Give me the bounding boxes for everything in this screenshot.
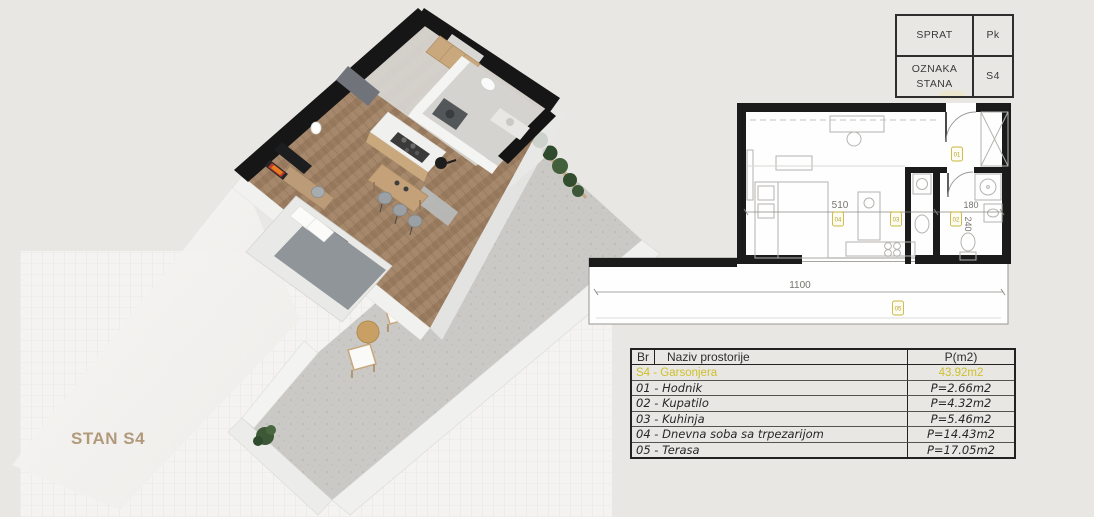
room-name: 05 - Terasa bbox=[632, 443, 907, 457]
dim-terrace-width: 1100 bbox=[789, 280, 811, 291]
dim-bathroom-width: 180 bbox=[963, 200, 978, 210]
room-name: 03 - Kuhinja bbox=[632, 412, 907, 426]
info-label-sprat: SPRAT bbox=[897, 16, 974, 57]
area-table-header: Br Naziv prostorije P(m2) bbox=[632, 350, 1014, 365]
room-area: P=2.66m2 bbox=[907, 381, 1014, 395]
dim-living-width: 510 bbox=[832, 200, 849, 211]
room-name: 02 - Kupatilo bbox=[632, 396, 907, 410]
header-area: P(m2) bbox=[907, 350, 1014, 364]
info-value-oznaka-stana: S4 bbox=[974, 57, 1012, 96]
unit-info-box: SPRAT Pk OZNAKA STANA S4 bbox=[895, 14, 1014, 98]
view-2d: 510 180 240 1100 01 02 bbox=[589, 91, 1011, 325]
marker-kuhinja: 03 bbox=[891, 212, 902, 226]
table-row: 02 - Kupatilo P=4.32m2 bbox=[632, 396, 1014, 411]
svg-text:05: 05 bbox=[895, 307, 902, 313]
svg-text:03: 03 bbox=[893, 218, 900, 224]
marker-dnevna-soba: 04 bbox=[833, 212, 844, 226]
info-value-sprat: Pk bbox=[974, 16, 1012, 57]
room-area: P=14.43m2 bbox=[907, 427, 1014, 441]
area-table: Br Naziv prostorije P(m2) S4 - Garsonjer… bbox=[630, 348, 1016, 459]
wall-clock-3d bbox=[311, 122, 321, 134]
room-area: P=5.46m2 bbox=[907, 412, 1014, 426]
pan-3d bbox=[435, 157, 447, 169]
table-row: 03 - Kuhinja P=5.46m2 bbox=[632, 412, 1014, 427]
floor-plan-sheet: 510 180 240 1100 01 02 bbox=[0, 0, 1094, 517]
dim-bathroom-depth: 240 bbox=[963, 216, 973, 231]
room-name: 01 - Hodnik bbox=[632, 381, 907, 395]
header-naziv: Naziv prostorije bbox=[655, 350, 907, 364]
marker-terasa: 05 bbox=[893, 301, 904, 315]
table-row: 05 - Terasa P=17.05m2 bbox=[632, 443, 1014, 457]
unit-label: STAN S4 bbox=[71, 429, 145, 449]
summary-area: 43.92m2 bbox=[907, 365, 1014, 379]
room-area: P=4.32m2 bbox=[907, 396, 1014, 410]
marker-hodnik: 01 bbox=[952, 147, 963, 161]
svg-text:02: 02 bbox=[953, 218, 960, 224]
table-row: 04 - Dnevna soba sa trpezarijom P=14.43m… bbox=[632, 427, 1014, 442]
room-name: 04 - Dnevna soba sa trpezarijom bbox=[632, 427, 907, 441]
room-area: P=17.05m2 bbox=[907, 443, 1014, 457]
svg-text:01: 01 bbox=[954, 153, 961, 159]
table-row-summary: S4 - Garsonjera 43.92m2 bbox=[632, 365, 1014, 380]
svg-text:04: 04 bbox=[835, 218, 842, 224]
summary-name: S4 - Garsonjera bbox=[632, 367, 907, 379]
marker-kupatilo: 02 bbox=[951, 212, 962, 226]
table-row: 01 - Hodnik P=2.66m2 bbox=[632, 381, 1014, 396]
terrace-2d bbox=[589, 258, 1008, 324]
info-label-oznaka-stana: OZNAKA STANA bbox=[897, 57, 974, 96]
building-face bbox=[12, 176, 300, 510]
header-br: Br bbox=[632, 350, 655, 364]
